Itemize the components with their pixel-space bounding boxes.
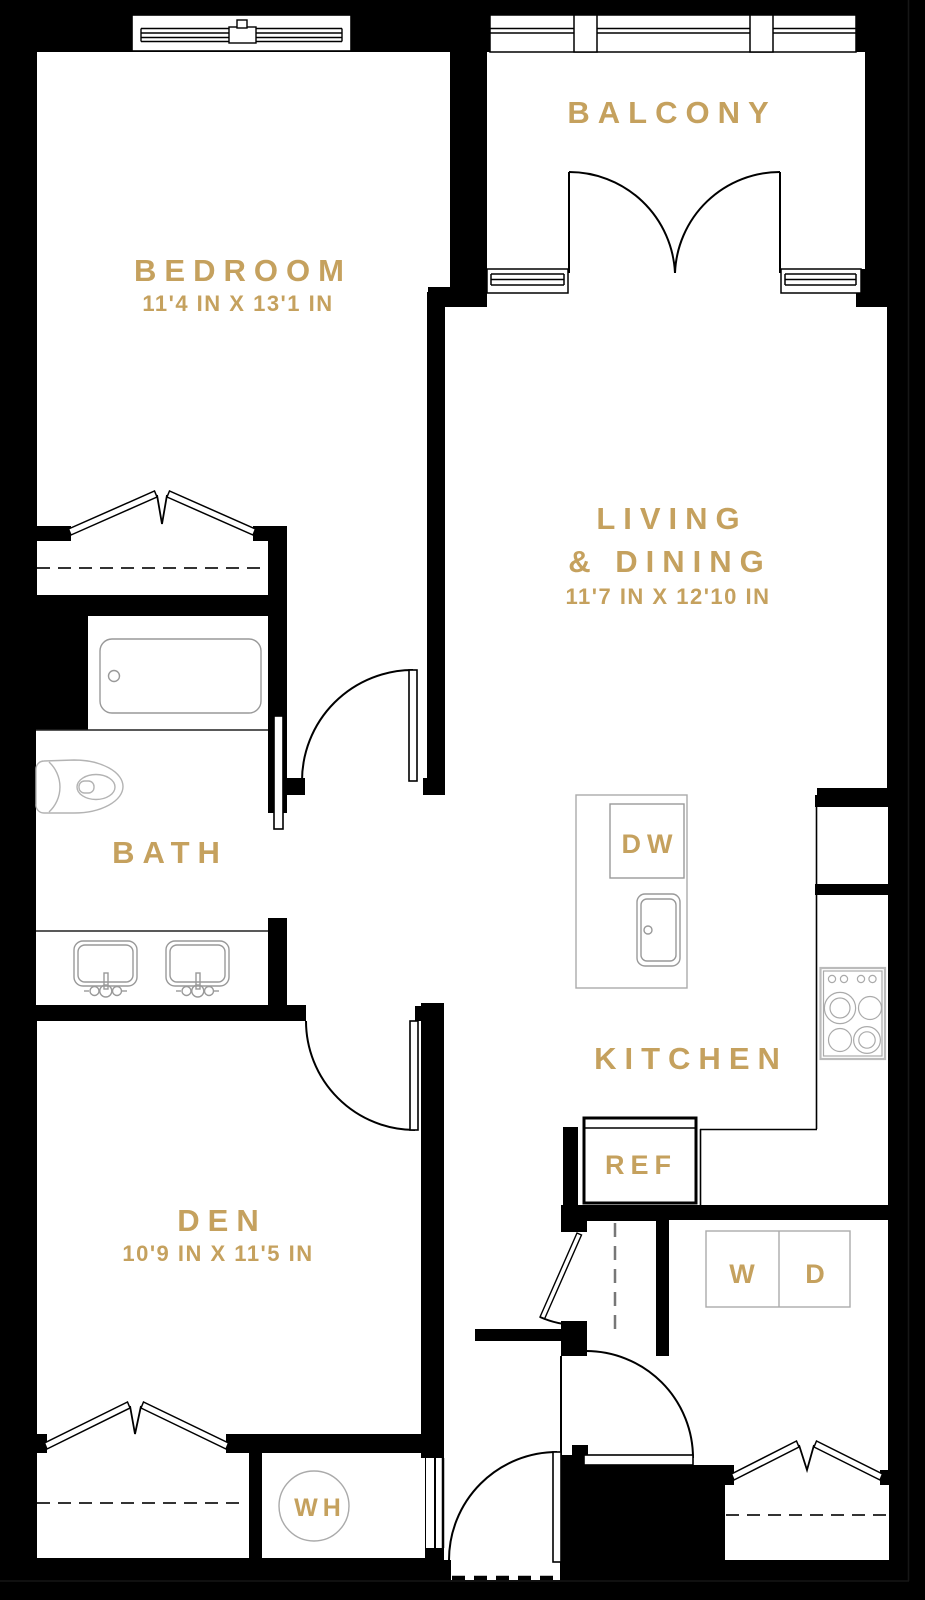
- svg-text:BALCONY: BALCONY: [567, 95, 776, 130]
- svg-text:DEN: DEN: [177, 1203, 266, 1238]
- svg-text:10'9 IN X 11'5 IN: 10'9 IN X 11'5 IN: [122, 1241, 313, 1266]
- svg-text:11'7 IN X 12'10 IN: 11'7 IN X 12'10 IN: [565, 584, 770, 609]
- svg-text:W: W: [729, 1259, 760, 1289]
- svg-text:WH: WH: [294, 1494, 346, 1522]
- svg-text:DW: DW: [622, 829, 679, 859]
- svg-text:LIVING: LIVING: [596, 501, 747, 536]
- svg-text:& DINING: & DINING: [568, 544, 772, 579]
- svg-text:BATH: BATH: [112, 835, 228, 870]
- svg-text:KITCHEN: KITCHEN: [594, 1041, 788, 1076]
- svg-text:D: D: [805, 1259, 831, 1289]
- svg-text:REF: REF: [605, 1150, 677, 1180]
- svg-text:BEDROOM: BEDROOM: [134, 253, 352, 288]
- svg-text:11'4 IN X 13'1 IN: 11'4 IN X 13'1 IN: [142, 291, 333, 316]
